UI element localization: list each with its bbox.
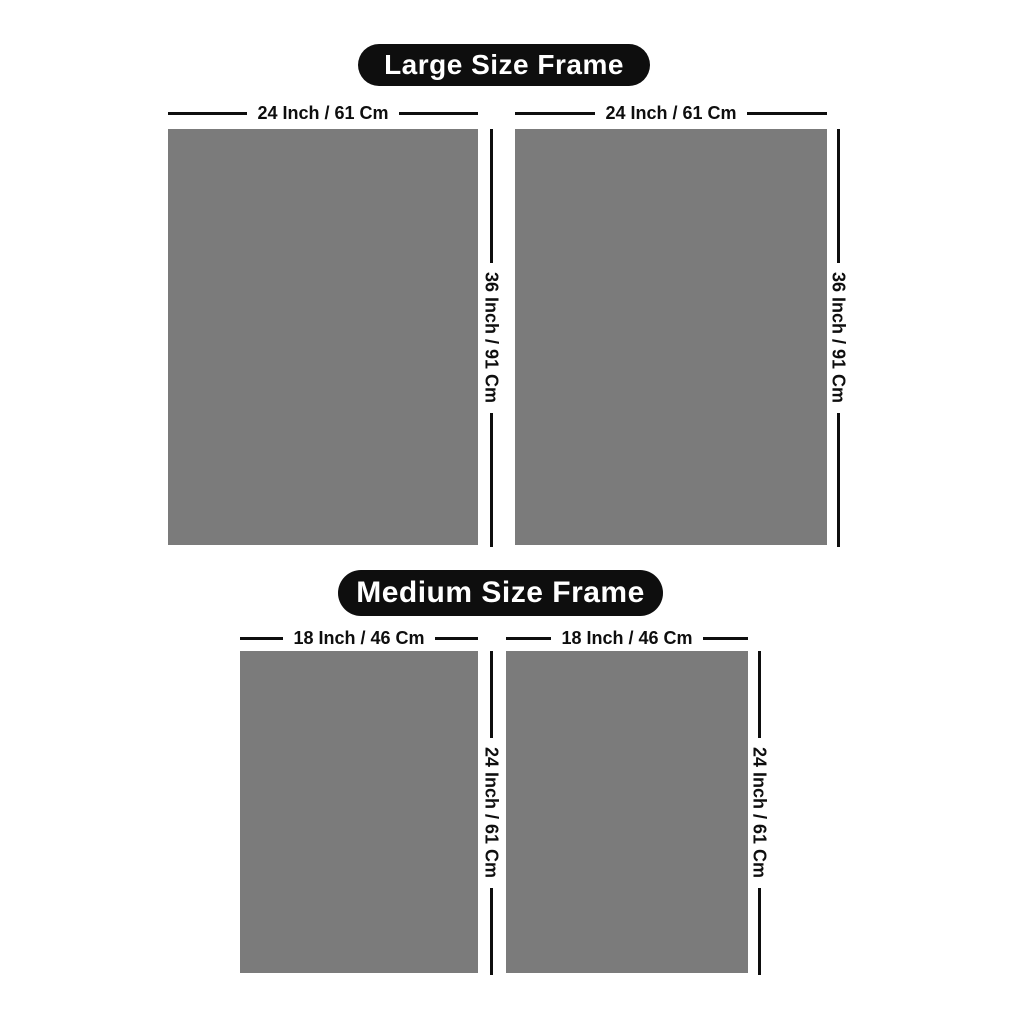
medium-left-frame-rect <box>240 651 478 973</box>
dimension-line <box>490 888 493 975</box>
dimension-line <box>490 129 493 263</box>
dimension-line <box>506 637 551 640</box>
dimension-line <box>435 637 478 640</box>
large-left-height-label: 36 Inch / 91 Cm <box>481 272 502 403</box>
large-right-height-label: 36 Inch / 91 Cm <box>828 272 849 403</box>
large-left-width-dimension: 24 Inch / 61 Cm <box>168 102 478 124</box>
dimension-line <box>747 112 827 115</box>
dimension-line <box>703 637 748 640</box>
dimension-line <box>837 413 840 547</box>
medium-right-height-label: 24 Inch / 61 Cm <box>749 747 770 878</box>
dimension-line <box>758 888 761 975</box>
medium-left-height-label: 24 Inch / 61 Cm <box>481 747 502 878</box>
dimension-line <box>758 651 761 738</box>
size-guide-diagram: Large Size Frame 24 Inch / 61 Cm 24 Inch… <box>0 0 1024 1024</box>
large-section-title-badge: Large Size Frame <box>358 44 650 86</box>
medium-section-title-badge: Medium Size Frame <box>338 570 663 616</box>
large-right-width-dimension: 24 Inch / 61 Cm <box>515 102 827 124</box>
medium-left-width-label: 18 Inch / 46 Cm <box>293 628 424 649</box>
large-left-height-dimension: 36 Inch / 91 Cm <box>478 129 504 547</box>
medium-right-height-dimension: 24 Inch / 61 Cm <box>746 651 772 975</box>
large-left-width-label: 24 Inch / 61 Cm <box>257 103 388 124</box>
large-right-frame-rect <box>515 129 827 545</box>
medium-right-width-label: 18 Inch / 46 Cm <box>561 628 692 649</box>
medium-left-width-dimension: 18 Inch / 46 Cm <box>240 627 478 649</box>
dimension-line <box>490 413 493 547</box>
large-left-frame-rect <box>168 129 478 545</box>
medium-right-width-dimension: 18 Inch / 46 Cm <box>506 627 748 649</box>
dimension-line <box>240 637 283 640</box>
dimension-line <box>490 651 493 738</box>
dimension-line <box>837 129 840 263</box>
large-right-width-label: 24 Inch / 61 Cm <box>605 103 736 124</box>
medium-left-height-dimension: 24 Inch / 61 Cm <box>478 651 504 975</box>
dimension-line <box>168 112 247 115</box>
medium-right-frame-rect <box>506 651 748 973</box>
dimension-line <box>515 112 595 115</box>
large-right-height-dimension: 36 Inch / 91 Cm <box>825 129 851 547</box>
dimension-line <box>399 112 478 115</box>
